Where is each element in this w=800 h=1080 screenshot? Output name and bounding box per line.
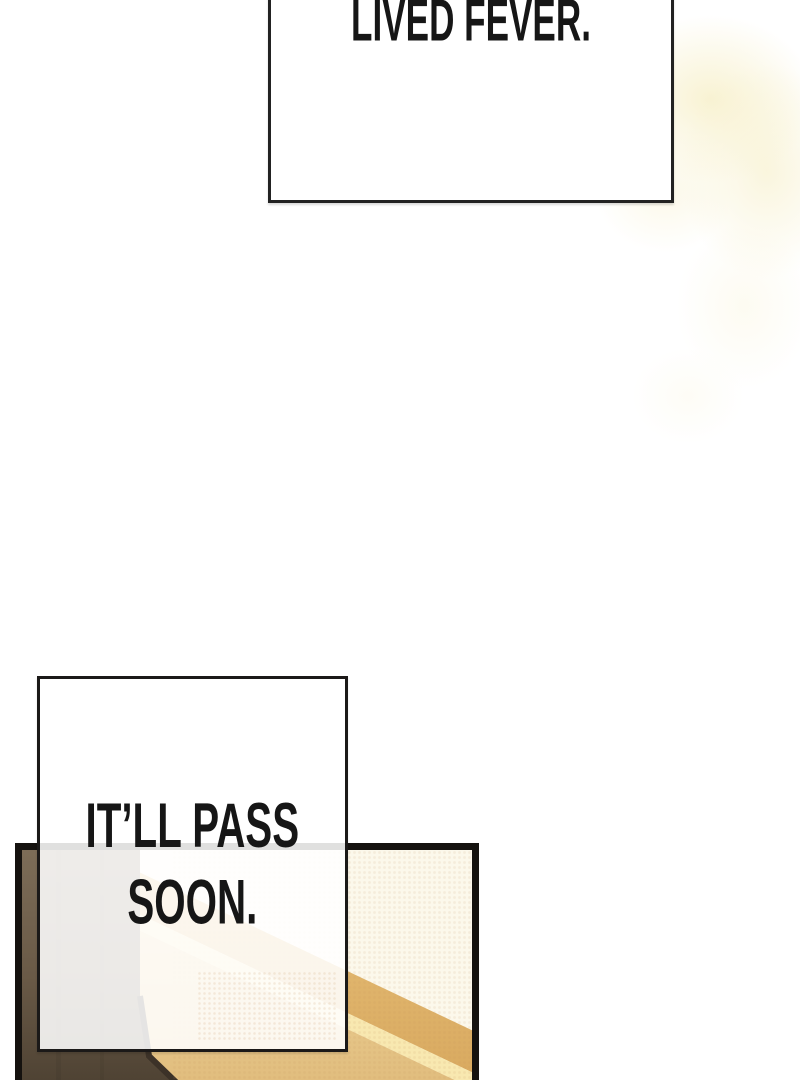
speech-line-1: IT’LL PASS (86, 788, 300, 864)
speech-text: IT’LL PASS SOON. (86, 788, 300, 940)
caption-box: LIVED FEVER. (268, 0, 674, 203)
speech-line-2: SOON. (86, 864, 300, 940)
speech-bubble: IT’LL PASS SOON. (37, 676, 348, 1052)
comic-page: LIVED FEVER. (0, 0, 800, 1080)
caption-text: LIVED FEVER. (341, 0, 601, 48)
